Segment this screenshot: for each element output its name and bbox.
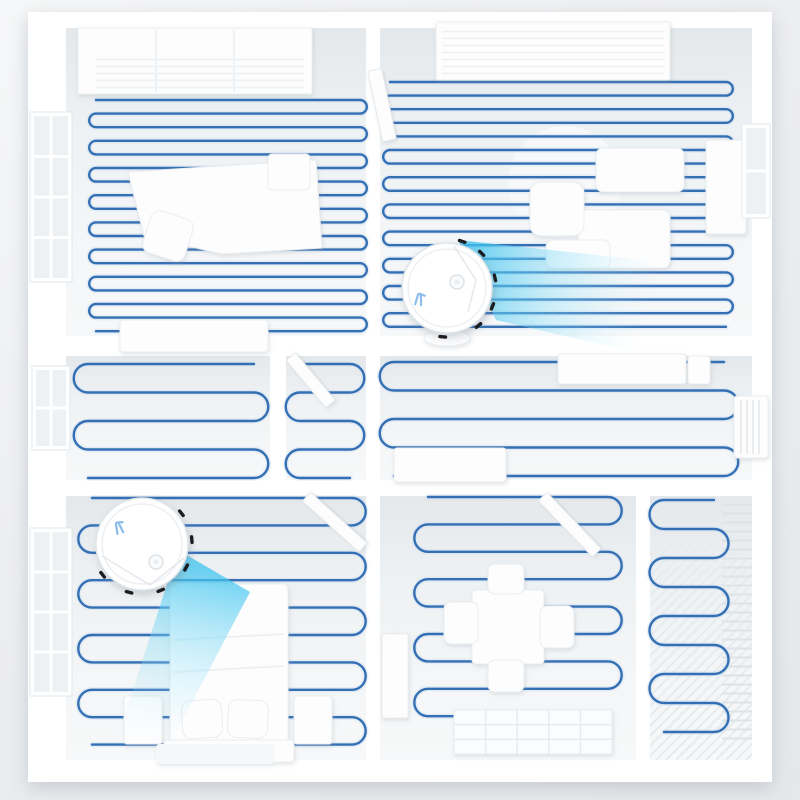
window-living	[742, 124, 770, 218]
chair-right	[540, 606, 574, 648]
window-study	[30, 112, 72, 282]
hall-decor	[688, 356, 710, 384]
side-table	[268, 154, 310, 190]
chair-top	[488, 564, 524, 594]
wardrobe	[78, 28, 312, 94]
shelf-grid-frame	[454, 710, 612, 754]
window-mid	[32, 366, 70, 450]
chair-bottom	[488, 660, 524, 692]
product-render	[0, 0, 800, 800]
ceiling-light	[436, 22, 670, 80]
shelf-grid	[454, 710, 612, 754]
dresser	[120, 320, 268, 352]
hall-cabinet	[394, 448, 506, 482]
sideboard	[558, 354, 686, 384]
chair-left	[444, 602, 478, 644]
floorplan-svg	[0, 0, 800, 800]
nightstand-right	[294, 696, 332, 744]
ceiling-light-grid	[442, 32, 664, 74]
robot-vacuum-living-body	[402, 243, 492, 333]
dining-table	[472, 590, 544, 664]
wall-shelf	[382, 634, 408, 718]
robot-vacuum-bedroom-button-dot	[154, 560, 159, 565]
floor-mid-left-room	[66, 356, 270, 480]
sofa-back	[596, 148, 684, 192]
tv-cabinet	[706, 140, 746, 234]
radiator	[734, 396, 768, 458]
pillow-right	[227, 699, 269, 739]
window-bedroom	[30, 528, 72, 696]
robot-vacuum-bedroom-body	[96, 498, 188, 590]
armchair	[530, 182, 584, 236]
robot-vacuum-living-button-dot	[455, 280, 460, 285]
bedside-rug	[156, 744, 274, 764]
